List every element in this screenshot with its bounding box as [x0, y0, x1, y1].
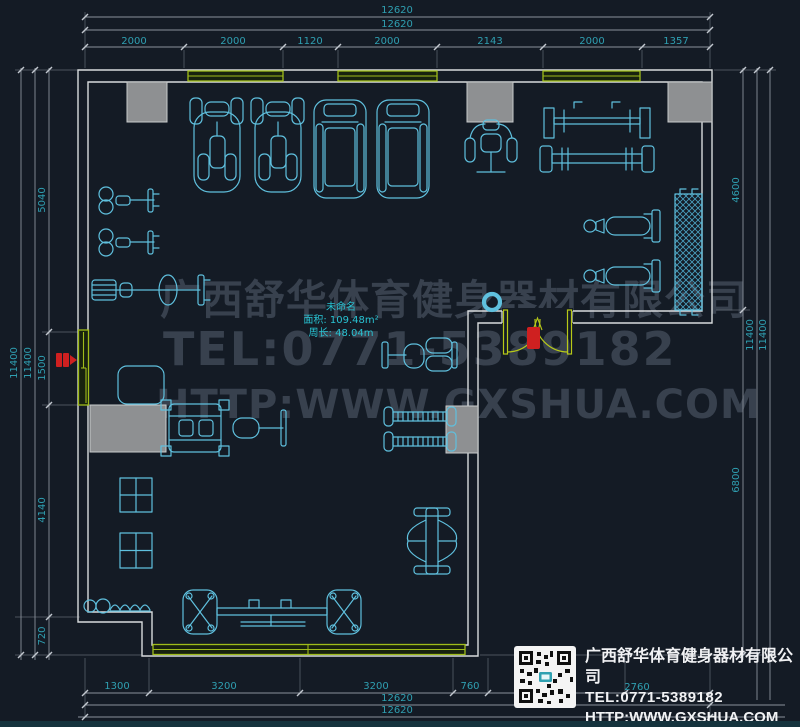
- pec-deck-machine: [465, 120, 517, 172]
- door-left-sliding: [79, 330, 89, 405]
- dumbbell-rack: [675, 189, 702, 315]
- svg-text:6800: 6800: [731, 467, 742, 492]
- svg-text:1300: 1300: [104, 681, 129, 692]
- svg-text:1500: 1500: [37, 355, 48, 380]
- svg-text:1357: 1357: [663, 36, 688, 47]
- flat-bench-1: [584, 210, 660, 242]
- svg-text:2000: 2000: [220, 36, 245, 47]
- window-bottom: [153, 645, 465, 655]
- footer-strip: [0, 721, 800, 727]
- cad-floorplan-canvas: 广西舒华体育健身器材有限公司 TEL:0771-5389182 HTTP:WWW…: [0, 0, 800, 727]
- svg-text:周长: 48.04m: 周长: 48.04m: [309, 327, 374, 339]
- title-company: 广西舒华体育健身器材有限公司: [585, 646, 800, 688]
- window-top-1: [188, 71, 283, 81]
- svg-text:11400: 11400: [9, 347, 20, 379]
- title-block: 广西舒华体育健身器材有限公司 TEL:0771-5389182 HTTP:WWW…: [514, 646, 800, 727]
- svg-text:760: 760: [460, 681, 479, 692]
- treadmill-1: [314, 100, 366, 198]
- svg-text:2000: 2000: [579, 36, 604, 47]
- floorplan-drawing: 12620 12620 2000 2000 1120 2000 2143 200…: [0, 0, 800, 727]
- storage-grid-1: [120, 478, 152, 512]
- elliptical-machine-2: [251, 98, 304, 192]
- svg-text:11400: 11400: [758, 319, 769, 351]
- elliptical-machine-1: [190, 98, 243, 192]
- svg-text:2143: 2143: [477, 36, 502, 47]
- dimension-labels: 12620 12620 2000 2000 1120 2000 2143 200…: [9, 5, 769, 716]
- svg-text:2000: 2000: [374, 36, 399, 47]
- svg-text:720: 720: [37, 626, 48, 645]
- svg-text:5040: 5040: [37, 187, 48, 212]
- treadmill-2: [377, 100, 429, 198]
- svg-text:12620: 12620: [381, 19, 413, 30]
- press-bench-left: [92, 275, 210, 305]
- plate-rack-2: [384, 432, 456, 451]
- storage-grid-2: [120, 533, 152, 568]
- svg-text:4140: 4140: [37, 497, 48, 522]
- t-bar-row-machine-1: [99, 187, 159, 214]
- svg-text:1120: 1120: [297, 36, 322, 47]
- ab-roller-machine: [84, 599, 150, 613]
- svg-text:4600: 4600: [731, 177, 742, 202]
- walls: [78, 70, 712, 656]
- flat-bench-2: [584, 260, 660, 292]
- room-label: 未命名 面积: 109.48m² 周长: 48.04m: [303, 300, 378, 339]
- fire-hydrant-icon-left: [56, 353, 77, 367]
- t-bar-row-machine-2: [99, 229, 159, 256]
- svg-text:11400: 11400: [23, 347, 34, 379]
- title-tel: TEL:0771-5389182: [585, 688, 800, 708]
- window-top-2: [338, 71, 437, 81]
- svg-text:12620: 12620: [381, 693, 413, 704]
- svg-text:3200: 3200: [363, 681, 388, 692]
- barbell-stand-bottom: [183, 590, 361, 634]
- round-stool: [484, 294, 500, 310]
- svg-text:未命名: 未命名: [326, 300, 356, 313]
- qr-code: [514, 646, 576, 708]
- fire-hydrant-icon-door: [527, 327, 540, 349]
- window-top-3: [543, 71, 640, 81]
- hip-abductor-machine: [382, 338, 457, 371]
- exercise-mat: [118, 366, 164, 404]
- lat-pulldown-machine: [161, 400, 286, 456]
- svg-text:11400: 11400: [745, 319, 756, 351]
- svg-text:2000: 2000: [121, 36, 146, 47]
- svg-text:3200: 3200: [211, 681, 236, 692]
- plate-rack-1: [384, 407, 456, 426]
- svg-text:12620: 12620: [381, 5, 413, 16]
- squat-machine: [407, 508, 456, 574]
- barbell-rack-top: [540, 102, 654, 172]
- svg-text:面积: 109.48m²: 面积: 109.48m²: [303, 314, 378, 326]
- equipment-layer: [84, 98, 702, 634]
- svg-text:12620: 12620: [381, 705, 413, 716]
